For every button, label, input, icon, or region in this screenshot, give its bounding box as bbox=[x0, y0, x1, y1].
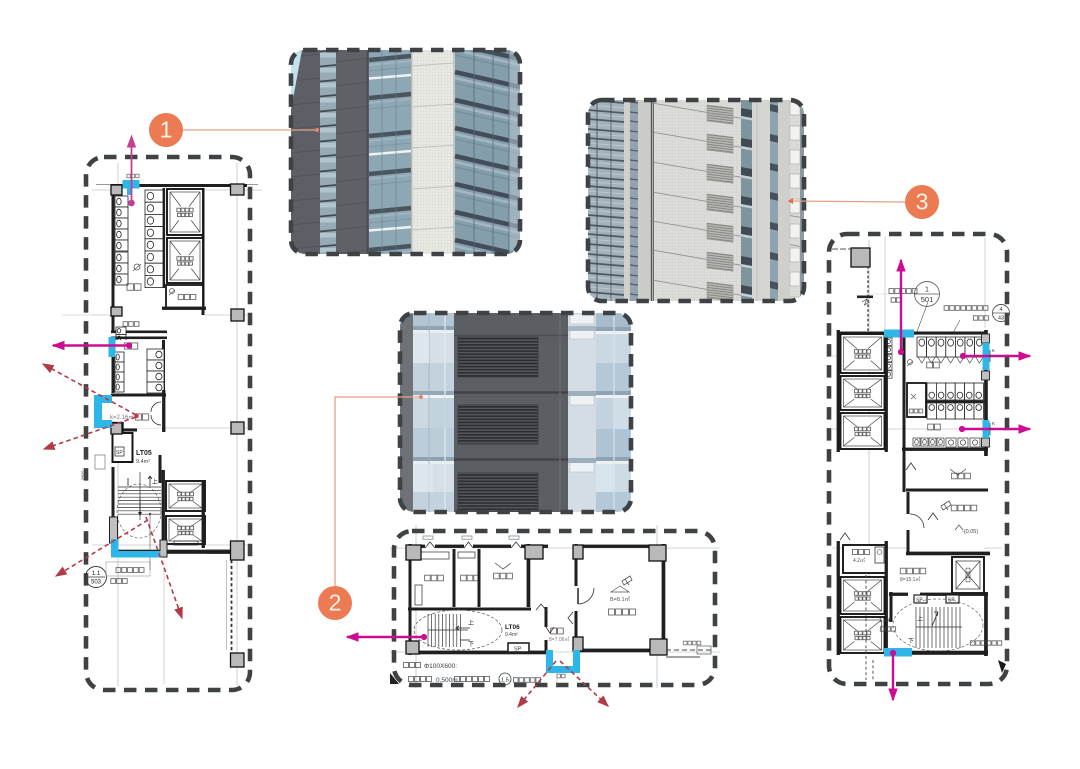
svg-text:1: 1 bbox=[160, 117, 173, 143]
svg-text:»«›‹··: »«›‹·· bbox=[80, 467, 86, 480]
svg-text:1.5: 1.5 bbox=[501, 678, 509, 684]
svg-text:8=7.06㎡: 8=7.06㎡ bbox=[549, 636, 569, 643]
svg-text:3: 3 bbox=[916, 189, 929, 215]
svg-text:4: 4 bbox=[999, 307, 1002, 313]
svg-text:9.4m²: 9.4m² bbox=[136, 459, 150, 465]
svg-text:SP: SP bbox=[116, 450, 123, 456]
svg-text:下: 下 bbox=[908, 638, 914, 645]
svg-text:9.4m²: 9.4m² bbox=[505, 632, 518, 638]
svg-text:1.1: 1.1 bbox=[92, 571, 101, 577]
svg-text:SP: SP bbox=[916, 598, 923, 604]
svg-text:上: 上 bbox=[152, 478, 158, 486]
svg-text:2: 2 bbox=[329, 590, 342, 616]
svg-text:501: 501 bbox=[921, 295, 934, 304]
svg-text:LT05: LT05 bbox=[136, 450, 152, 457]
svg-text:1: 1 bbox=[925, 287, 929, 294]
svg-text:K: K bbox=[992, 348, 995, 353]
svg-text:K: K bbox=[992, 421, 995, 426]
svg-text:8=15.1㎡: 8=15.1㎡ bbox=[900, 576, 920, 583]
svg-text:43: 43 bbox=[998, 316, 1004, 322]
svg-text:503: 503 bbox=[91, 580, 102, 586]
svg-text:-(0.05): -(0.05) bbox=[962, 529, 978, 535]
svg-text:下: 下 bbox=[468, 641, 474, 648]
svg-text:LT06: LT06 bbox=[505, 624, 520, 631]
svg-text:SP: SP bbox=[514, 647, 522, 653]
svg-text:4.2㎡: 4.2㎡ bbox=[853, 557, 865, 564]
svg-text:B=8.1㎡: B=8.1㎡ bbox=[610, 595, 631, 603]
svg-text:上: 上 bbox=[468, 619, 474, 627]
svg-text:Φ100X600:: Φ100X600: bbox=[424, 663, 457, 670]
svg-text:上: 上 bbox=[917, 615, 923, 623]
svg-text:k=2.16㎡: k=2.16㎡ bbox=[110, 413, 134, 421]
